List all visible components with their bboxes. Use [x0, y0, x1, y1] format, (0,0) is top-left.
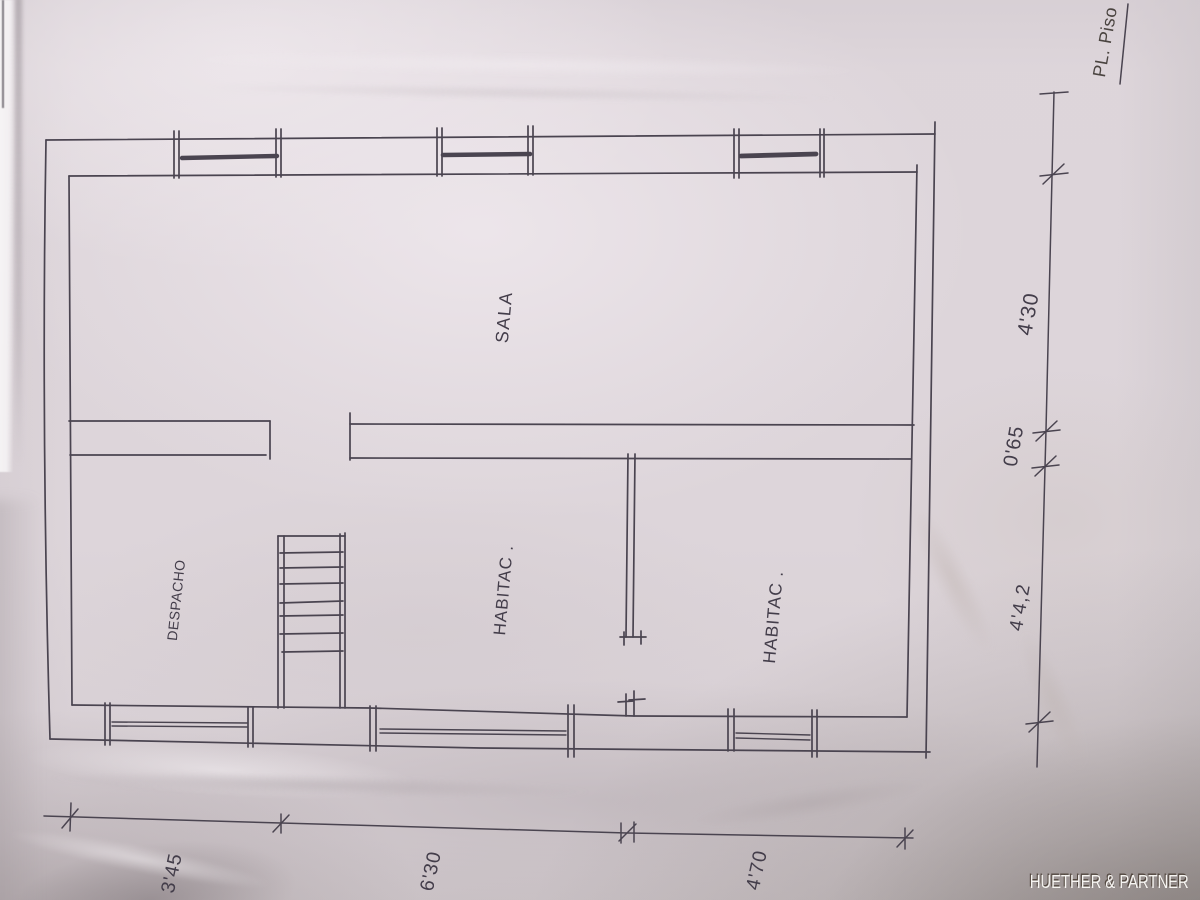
svg-text:4'4,2: 4'4,2	[1006, 582, 1035, 633]
svg-text:PL. Piso: PL. Piso	[1089, 5, 1121, 78]
svg-text:4'70: 4'70	[742, 848, 772, 892]
svg-text:3'45: 3'45	[157, 851, 187, 895]
svg-text:6'30: 6'30	[416, 849, 446, 893]
svg-text:HABITAC .: HABITAC .	[490, 544, 517, 636]
svg-text:4'30: 4'30	[1013, 291, 1043, 337]
svg-text:DESPACHO: DESPACHO	[164, 559, 188, 642]
svg-text:HABITAC .: HABITAC .	[759, 570, 787, 665]
svg-text:0'65: 0'65	[1000, 424, 1029, 468]
svg-text:SALA: SALA	[492, 290, 516, 344]
